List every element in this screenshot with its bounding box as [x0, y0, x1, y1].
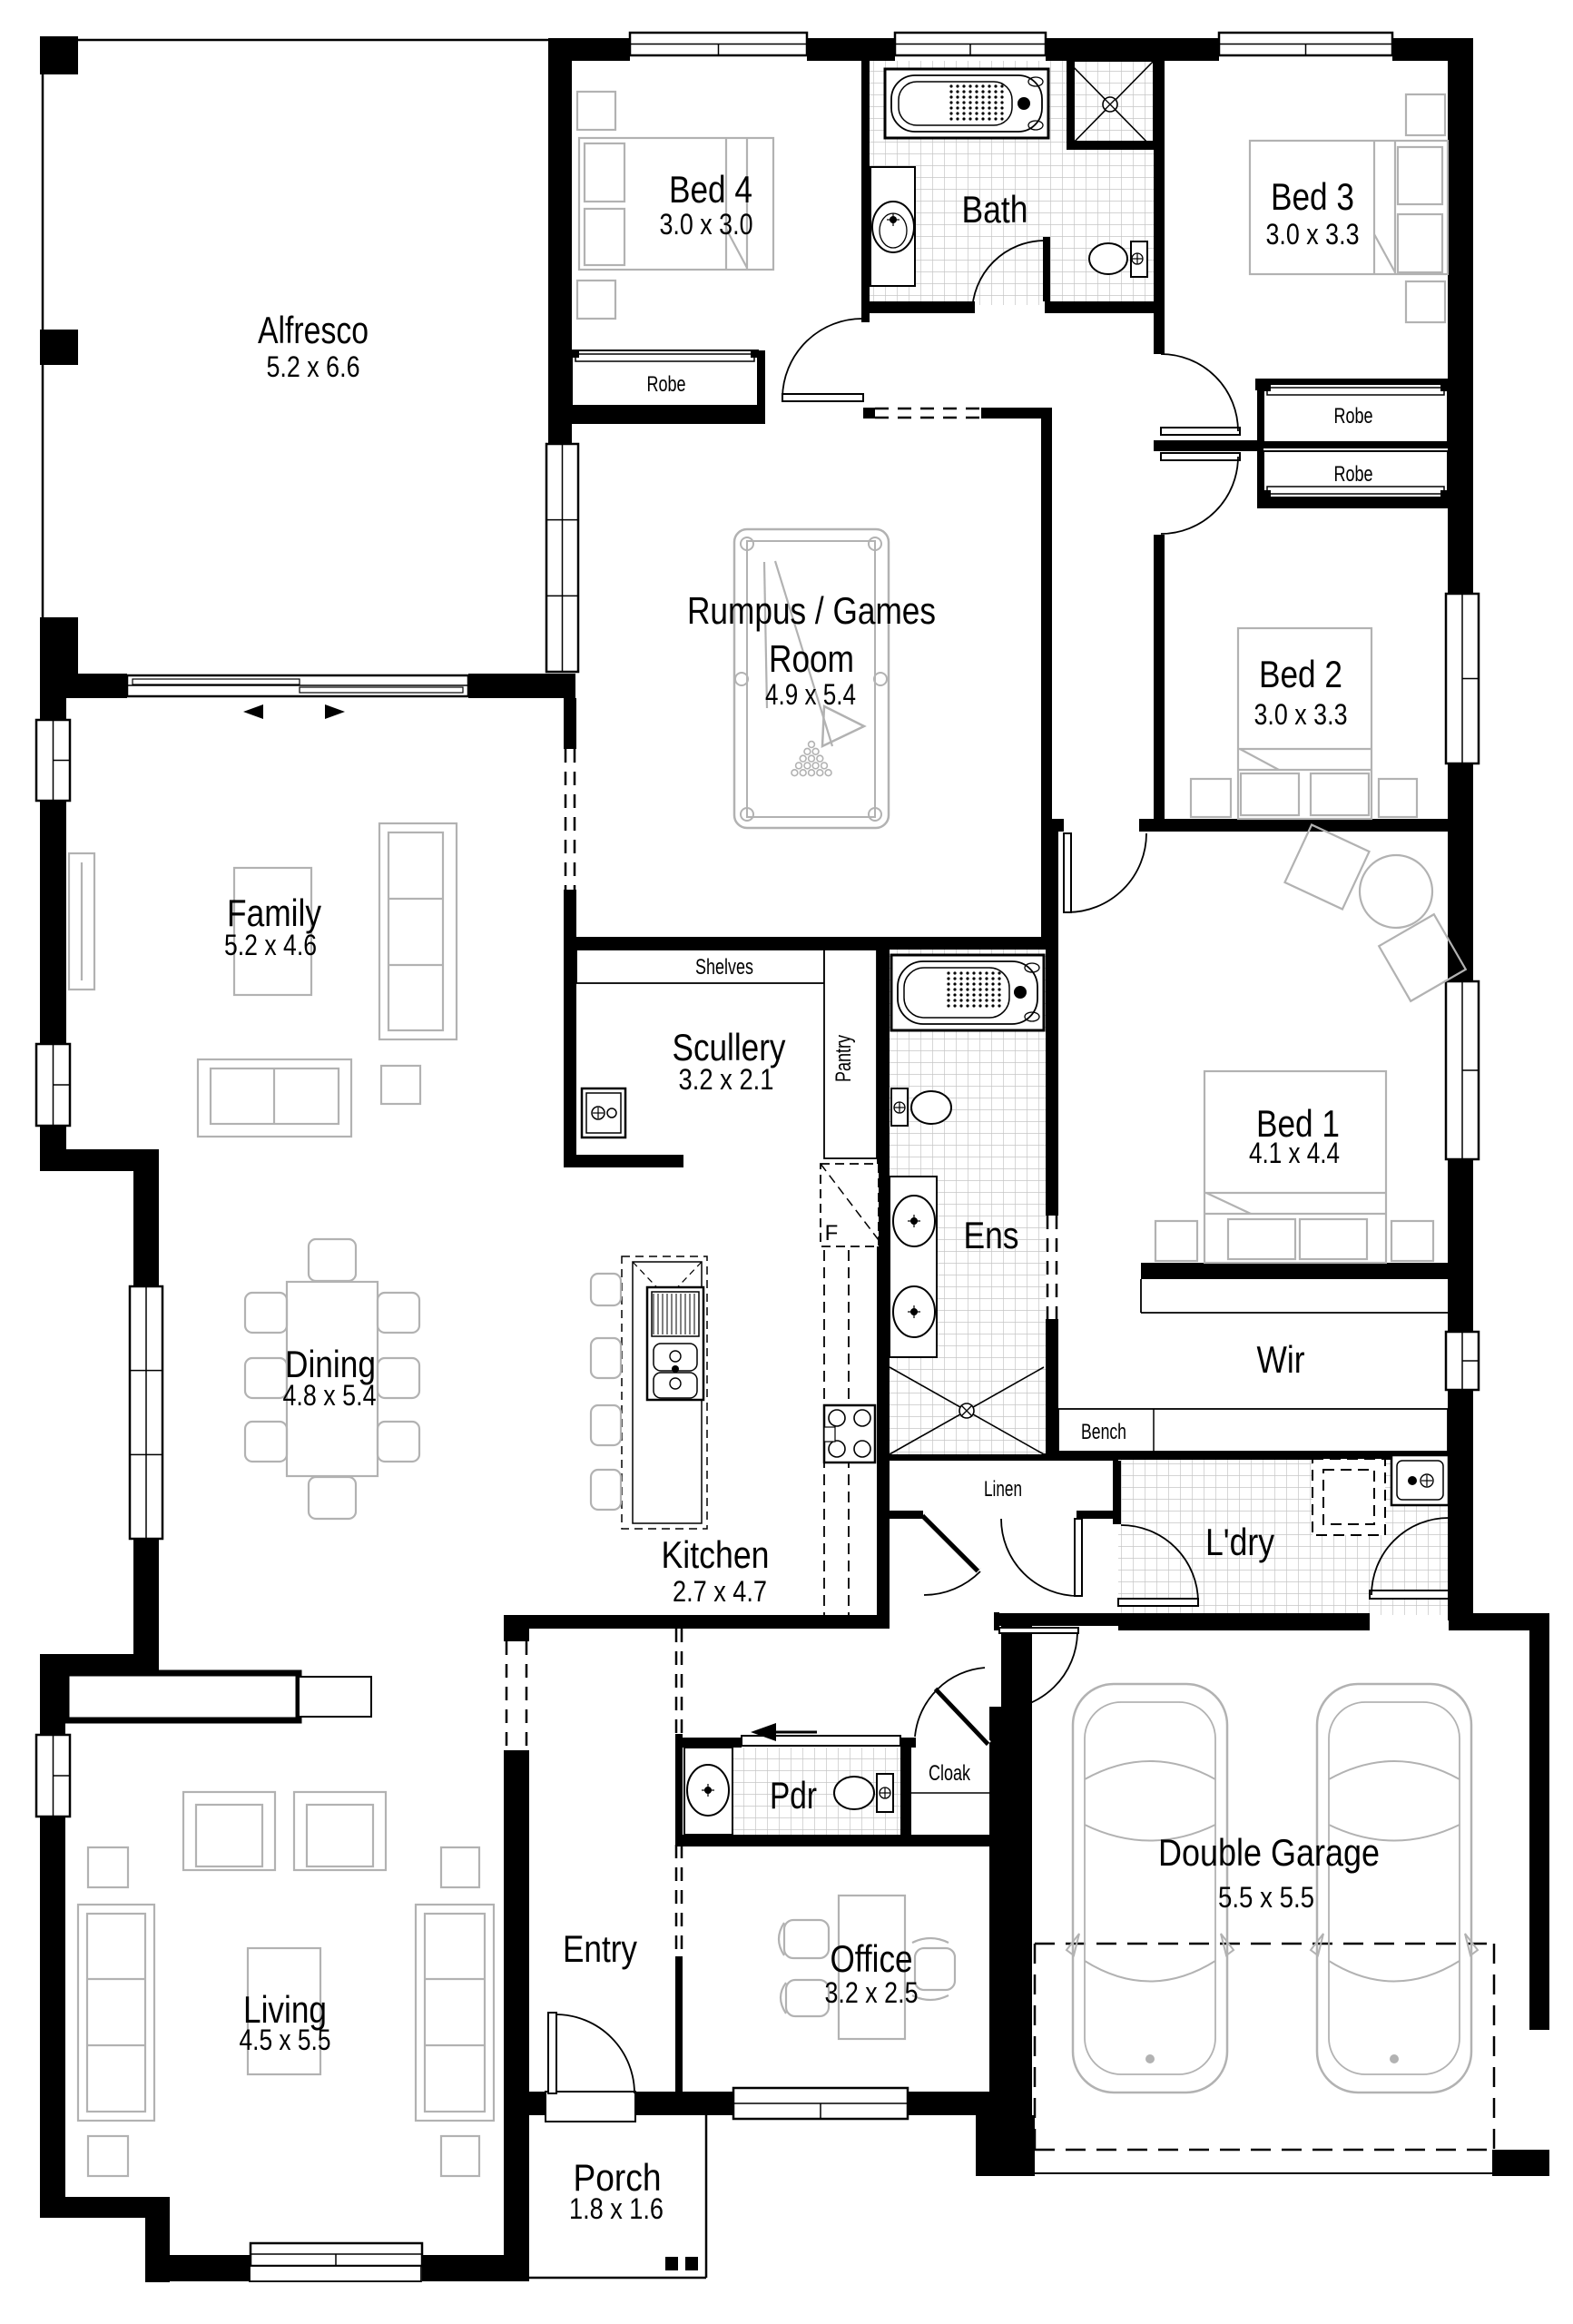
svg-text:Pantry: Pantry	[831, 1035, 856, 1082]
svg-text:Wir: Wir	[1257, 1338, 1305, 1381]
svg-text:Ens: Ens	[964, 1214, 1019, 1256]
svg-text:Bench: Bench	[1081, 1420, 1126, 1444]
svg-text:Office: Office	[831, 1937, 913, 1980]
svg-text:3.2 x 2.1: 3.2 x 2.1	[679, 1063, 774, 1096]
svg-text:3.0 x 3.3: 3.0 x 3.3	[1266, 218, 1360, 251]
svg-text:Double Garage: Double Garage	[1158, 1831, 1380, 1874]
svg-text:2.7 x 4.7: 2.7 x 4.7	[673, 1575, 767, 1608]
svg-text:Rumpus / Games: Rumpus / Games	[687, 589, 936, 632]
svg-text:5.2 x 4.6: 5.2 x 4.6	[224, 929, 317, 961]
svg-text:Robe: Robe	[647, 372, 686, 397]
svg-text:Linen: Linen	[984, 1477, 1022, 1502]
svg-text:4.9 x 5.4: 4.9 x 5.4	[765, 678, 856, 711]
svg-text:Pdr: Pdr	[770, 1774, 817, 1817]
svg-text:Bed 3: Bed 3	[1271, 175, 1354, 218]
svg-text:Scullery: Scullery	[673, 1026, 786, 1068]
svg-text:Alfresco: Alfresco	[258, 309, 369, 351]
svg-text:Entry: Entry	[563, 1927, 637, 1970]
svg-text:3.0 x 3.3: 3.0 x 3.3	[1254, 698, 1348, 731]
svg-text:4.5 x 5.5: 4.5 x 5.5	[240, 2024, 331, 2056]
svg-text:Room: Room	[769, 637, 854, 680]
svg-text:L'dry: L'dry	[1205, 1521, 1274, 1563]
svg-text:3.2 x 2.5: 3.2 x 2.5	[825, 1976, 919, 2009]
svg-text:Cloak: Cloak	[929, 1761, 971, 1786]
svg-text:Robe: Robe	[1334, 404, 1373, 428]
svg-text:Bed 4: Bed 4	[669, 168, 752, 211]
svg-text:Family: Family	[227, 891, 321, 934]
svg-text:5.2 x 6.6: 5.2 x 6.6	[267, 350, 360, 383]
svg-text:Shelves: Shelves	[695, 955, 753, 980]
svg-text:4.8 x 5.4: 4.8 x 5.4	[283, 1379, 377, 1412]
svg-text:F: F	[825, 1221, 839, 1246]
svg-text:Kitchen: Kitchen	[662, 1533, 770, 1576]
svg-text:5.5 x 5.5: 5.5 x 5.5	[1218, 1881, 1314, 1914]
svg-text:Bed 2: Bed 2	[1259, 653, 1342, 695]
svg-text:3.0 x 3.0: 3.0 x 3.0	[660, 208, 753, 241]
svg-text:1.8 x 1.6: 1.8 x 1.6	[569, 2192, 664, 2225]
svg-text:Robe: Robe	[1334, 462, 1373, 487]
svg-text:4.1 x 4.4: 4.1 x 4.4	[1249, 1137, 1340, 1169]
svg-text:Bath: Bath	[962, 188, 1028, 231]
